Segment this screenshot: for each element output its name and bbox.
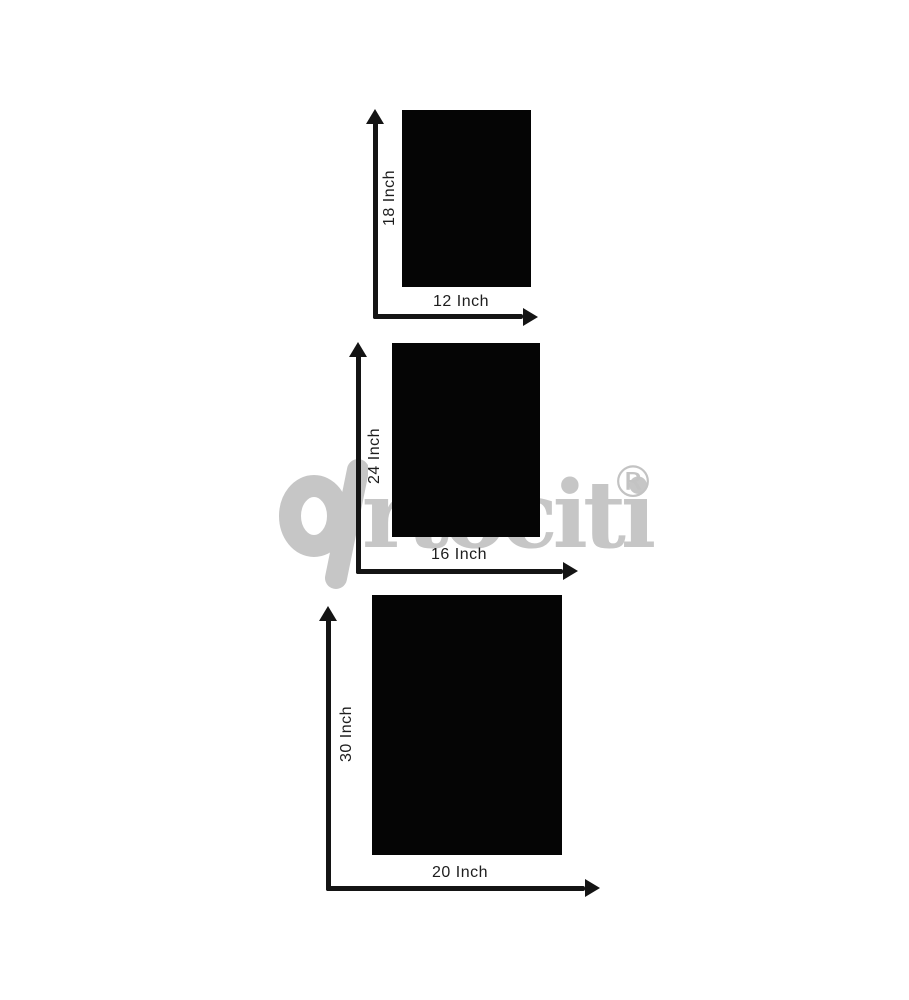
- size-chart-image: rtociti ® 18 Inch 12 Inch 24 Inch 16 Inc…: [0, 0, 909, 1000]
- width-label: 20 Inch: [432, 864, 488, 882]
- height-label: 30 Inch: [338, 706, 356, 762]
- size-panel-large: [372, 595, 562, 855]
- arrow-right-icon: [585, 879, 600, 897]
- arrow-up-icon: [319, 606, 337, 621]
- width-arrow-line: [326, 886, 585, 891]
- height-arrow-line: [326, 619, 331, 891]
- size-group-30x20: 30 Inch 20 Inch: [0, 0, 909, 1000]
